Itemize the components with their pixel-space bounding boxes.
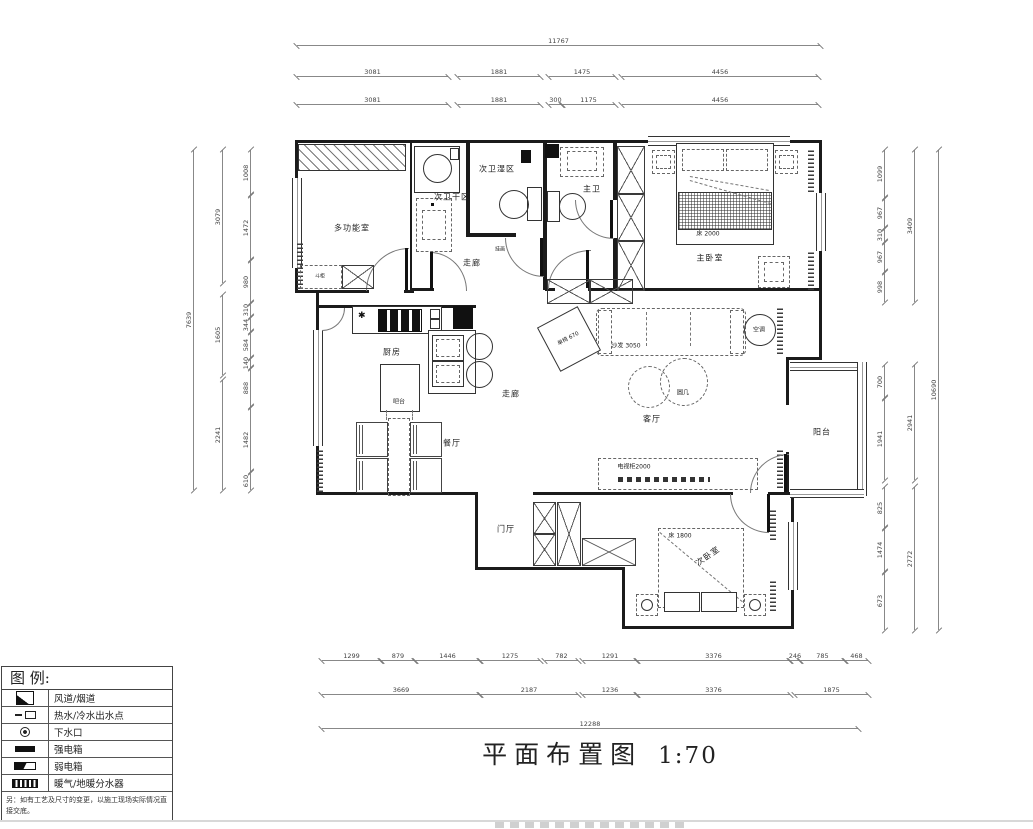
door-arc xyxy=(322,308,345,331)
dimension-segment: 4456 xyxy=(622,104,818,105)
room-label-chest: 斗柜 xyxy=(315,273,325,280)
bar-table-link xyxy=(412,410,414,420)
detergent-box xyxy=(450,148,459,160)
furniture-label-sofa: 沙发 3050 xyxy=(611,341,640,350)
room-label-corridor-a: 走廊 xyxy=(463,258,481,269)
pillow xyxy=(682,149,724,171)
radiator xyxy=(317,448,323,492)
dimension-segment: 1275 xyxy=(480,660,540,661)
counter-box xyxy=(430,319,440,329)
wall-segment xyxy=(475,567,625,570)
dimension-segment: 1475 xyxy=(549,76,615,77)
dimension-label: 879 xyxy=(392,652,404,660)
dimension-label: 1008 xyxy=(242,164,250,181)
dimension-segment: 1008 xyxy=(250,150,251,195)
dimension-label: 967 xyxy=(876,207,884,219)
dimension-label: 3669 xyxy=(393,686,410,694)
dimension-label: 1482 xyxy=(242,431,250,448)
round-table xyxy=(660,358,708,406)
dimension-label: 1236 xyxy=(602,686,619,694)
dimension-label: 3079 xyxy=(214,208,222,225)
burner-circle xyxy=(466,361,493,388)
window xyxy=(788,522,798,590)
door-leaf xyxy=(405,248,408,290)
dimension-label: 3081 xyxy=(364,68,381,76)
nightstand-lamp xyxy=(749,599,761,611)
sofa-divider xyxy=(646,312,648,346)
furniture-label-round-table: 圆几 xyxy=(677,388,689,397)
room-label-bath1: 主卫 xyxy=(583,184,601,195)
dimension-segment: 1881 xyxy=(458,104,540,105)
room-label-kitchen: 厨房 xyxy=(383,347,401,358)
legend-row: 暖气/地暖分水器 xyxy=(2,775,172,792)
dimension-label: 1941 xyxy=(876,431,884,448)
dimension-segment: 1299 xyxy=(322,660,381,661)
dimension-segment: 1446 xyxy=(415,660,480,661)
legend-label: 下水口 xyxy=(49,725,172,739)
legend-symbol-water-outlet xyxy=(2,707,49,723)
room-label-corridor-b: 走廊 xyxy=(502,389,520,400)
dimension-label: 825 xyxy=(876,501,884,513)
door-arc xyxy=(505,238,544,277)
dimension-segment: 1482 xyxy=(250,407,251,472)
room-label-multi: 多功能室 xyxy=(334,223,370,234)
room-label-master: 主卧室 xyxy=(697,253,724,264)
burner-circle xyxy=(466,333,493,360)
foyer-closet xyxy=(533,502,556,535)
kitchen-sink-inner xyxy=(436,365,460,383)
door-arc xyxy=(430,252,467,291)
sofa-armrest xyxy=(598,310,612,354)
dimension-segment: 1291 xyxy=(583,660,637,661)
dimension-label: 1299 xyxy=(343,652,360,660)
dimension-segment: 2241 xyxy=(222,380,223,490)
dimension-segment: 998 xyxy=(884,272,885,302)
wall-segment xyxy=(786,357,789,405)
gas-symbol: ✱ xyxy=(358,312,366,321)
dimension-segment: 888 xyxy=(250,368,251,407)
room-label-living: 客厅 xyxy=(643,414,661,425)
nightstand-inner xyxy=(779,155,794,169)
tv-cabinet-dashes xyxy=(618,477,710,482)
stove xyxy=(378,309,422,332)
legend-label: 风道/烟道 xyxy=(49,691,172,705)
radiator xyxy=(808,150,814,192)
kitchen-sink-inner xyxy=(436,339,460,357)
dimension-segment: 3376 xyxy=(637,660,790,661)
dimension-label: 980 xyxy=(242,275,250,287)
sofa-divider xyxy=(690,312,692,346)
corner-seat-inner xyxy=(764,262,784,282)
wall-segment xyxy=(533,492,733,495)
wall-segment xyxy=(466,140,470,236)
dimension-segment: 468 xyxy=(845,660,868,661)
dimension-segment: 4456 xyxy=(622,76,818,77)
dimension-segment: 7639 xyxy=(193,150,194,490)
dimension-segment: 3081 xyxy=(297,104,448,105)
dimension-segment: 673 xyxy=(884,572,885,630)
hall-cabinet xyxy=(547,279,591,304)
dimension-segment: 584 xyxy=(250,332,251,358)
dimension-label: 1881 xyxy=(491,68,508,76)
dimension-label: 1291 xyxy=(602,652,619,660)
dimension-segment: 1881 xyxy=(458,76,540,77)
dimension-label: 1446 xyxy=(439,652,456,660)
balcony-window xyxy=(790,489,864,498)
dimension-segment: 12288 xyxy=(322,728,858,729)
dimension-segment: 3669 xyxy=(322,694,480,695)
wall-segment xyxy=(622,626,794,629)
dimension-label: 4456 xyxy=(712,96,729,104)
door-leaf xyxy=(784,454,787,492)
door-leaf xyxy=(430,252,433,290)
dimension-label: 246 xyxy=(789,652,801,660)
dimension-segment: 782 xyxy=(545,660,578,661)
dimension-segment: 1605 xyxy=(222,295,223,375)
room-label-bath2-wet: 次卫湿区 xyxy=(479,164,515,175)
radiator xyxy=(770,580,776,611)
dining-chair xyxy=(410,422,442,457)
dimension-label: 310 xyxy=(876,229,884,241)
shower-symbol: ✱ xyxy=(521,153,529,162)
legend-row: 下水口 xyxy=(2,724,172,741)
legend-symbol-drain xyxy=(2,724,49,740)
dimension-label: 700 xyxy=(876,375,884,387)
legend-row: 热水/冷水出水点 xyxy=(2,707,172,724)
room-label-bar: 吧台 xyxy=(393,397,405,406)
toilet-tank xyxy=(527,187,542,221)
legend-symbol-flue xyxy=(2,690,49,706)
pillow xyxy=(664,592,700,612)
dimension-label: 2187 xyxy=(521,686,538,694)
door-leaf xyxy=(610,200,613,238)
dimension-label: 3081 xyxy=(364,96,381,104)
dimension-label: 888 xyxy=(242,381,250,393)
legend-label: 暖气/地暖分水器 xyxy=(49,776,172,790)
dimension-label: 998 xyxy=(876,281,884,293)
dimension-label: 1605 xyxy=(214,327,222,344)
dimension-label: 11767 xyxy=(548,37,569,45)
balcony-window xyxy=(857,362,867,496)
dimension-segment: 2187 xyxy=(480,694,578,695)
drawing-title: 平面布置图1:70 xyxy=(430,735,770,771)
legend-table: 图 例: 风道/烟道 热水/冷水出水点 下水口 强电箱 弱电箱 暖气/地暖分水器… xyxy=(1,666,173,821)
room-label-foyer: 门厅 xyxy=(497,524,515,535)
dimension-segment: 1099 xyxy=(884,150,885,198)
vanity-sink xyxy=(422,210,446,240)
washing-machine-drum xyxy=(423,154,452,183)
dimension-label: 1275 xyxy=(502,652,519,660)
dimension-label: 967 xyxy=(876,251,884,263)
radiator xyxy=(808,252,814,290)
dimension-segment: 3081 xyxy=(297,76,448,77)
dimension-label: 468 xyxy=(850,652,862,660)
dimension-label: 1475 xyxy=(574,68,591,76)
door-leaf xyxy=(767,494,770,532)
bed-blanket xyxy=(678,192,772,230)
legend-symbol-manifold xyxy=(2,775,49,791)
room-label-dining: 餐厅 xyxy=(443,438,461,449)
furniture-label-tv: 电视柜2000 xyxy=(617,462,650,471)
wall-segment xyxy=(295,290,369,293)
dimension-segment: 11767 xyxy=(297,45,820,46)
dimension-segment: 1472 xyxy=(250,195,251,260)
legend-header: 图 例: xyxy=(2,667,172,690)
wall-segment xyxy=(786,357,822,360)
dimension-label: 3376 xyxy=(705,652,722,660)
legend-label: 强电箱 xyxy=(49,742,172,756)
dimension-label: 1875 xyxy=(823,686,840,694)
pillow xyxy=(726,149,768,171)
dimension-segment: 10690 xyxy=(938,150,939,630)
furniture-label-master-bed: 床 2000 xyxy=(696,229,719,238)
wall-segment xyxy=(410,140,412,290)
dimension-label: 1881 xyxy=(491,96,508,104)
legend-label: 弱电箱 xyxy=(49,759,172,773)
dining-chair xyxy=(356,458,388,493)
toilet-bowl xyxy=(499,190,529,219)
room-label-balcony: 阳台 xyxy=(813,427,831,438)
legend-note: 另：如有工艺及尺寸的变更，以施工现场实际情况直接交底。 xyxy=(2,792,172,820)
dimension-label: 1175 xyxy=(580,96,597,104)
foyer-closet xyxy=(533,533,556,566)
dimension-segment: 3376 xyxy=(637,694,790,695)
title-text: 平面布置图 xyxy=(482,740,642,769)
dimension-label: 3376 xyxy=(705,686,722,694)
dining-chair xyxy=(356,422,388,457)
wardrobe xyxy=(617,146,645,195)
sofa-armrest xyxy=(730,310,744,354)
hall-cabinet xyxy=(589,279,633,304)
window xyxy=(816,193,826,251)
dimension-segment: 1175 xyxy=(562,104,615,105)
bath-sink xyxy=(567,151,597,171)
cutoff-text-strip xyxy=(495,822,685,828)
balcony-window xyxy=(790,362,864,371)
dimension-segment: 879 xyxy=(381,660,415,661)
legend-row: 强电箱 xyxy=(2,741,172,758)
nightstand-lamp xyxy=(641,599,653,611)
dimension-label: 2941 xyxy=(906,414,914,431)
dimension-segment: 785 xyxy=(800,660,845,661)
dimension-label: 785 xyxy=(816,652,828,660)
floor-plan-page: 11767 3081188114754456 30811881300117544… xyxy=(0,0,1033,829)
flue xyxy=(545,144,559,158)
dimension-segment: 1941 xyxy=(884,398,885,480)
dimension-label: 3409 xyxy=(906,218,914,235)
dimension-segment: 3079 xyxy=(222,150,223,283)
dimension-segment: 1474 xyxy=(884,528,885,572)
dimension-segment: 3409 xyxy=(914,150,915,302)
dimension-label: 4456 xyxy=(712,68,729,76)
wall-segment xyxy=(475,492,478,570)
dimension-segment: 825 xyxy=(884,487,885,528)
dimension-label: 1099 xyxy=(876,166,884,183)
dimension-segment: 1875 xyxy=(795,694,868,695)
dimension-segment: 1236 xyxy=(583,694,637,695)
legend-row: 风道/烟道 xyxy=(2,690,172,707)
foyer-cabinet xyxy=(582,538,636,566)
wall-segment xyxy=(622,567,625,629)
dimension-segment: 980 xyxy=(250,260,251,303)
radiator xyxy=(777,308,783,354)
dimension-label: 7639 xyxy=(185,312,193,329)
legend-symbol-weak-power xyxy=(2,758,49,774)
wardrobe xyxy=(617,193,645,242)
dimension-label: 12288 xyxy=(580,720,601,728)
pillow xyxy=(701,592,737,612)
legend-symbol-strong-power xyxy=(2,741,49,757)
dimension-label: 782 xyxy=(555,652,567,660)
faucet-dot xyxy=(431,203,434,206)
furniture-label-ac: 空调 xyxy=(753,325,765,334)
wall-segment xyxy=(466,233,516,237)
title-scale: 1:70 xyxy=(658,743,718,769)
dimension-label: 673 xyxy=(876,595,884,607)
door-leaf xyxy=(540,238,543,276)
nightstand-inner xyxy=(656,155,671,169)
dimension-label: 1472 xyxy=(242,219,250,236)
room-label-bath2-dry: 次卫干区 xyxy=(434,192,470,203)
window xyxy=(313,330,323,446)
dimension-label: 344 xyxy=(242,318,250,330)
wardrobe xyxy=(298,144,406,171)
dining-table xyxy=(388,418,410,496)
label-art: 挂画 xyxy=(495,246,505,253)
dimension-label: 2772 xyxy=(906,550,914,567)
flue xyxy=(453,306,473,329)
furniture-label-second-bed: 床 1800 xyxy=(668,531,691,540)
dimension-segment: 700 xyxy=(884,365,885,398)
dimension-label: 610 xyxy=(242,475,250,487)
radiator xyxy=(770,508,776,540)
dimension-segment: 967 xyxy=(884,198,885,228)
dimension-label: 310 xyxy=(242,304,250,316)
dining-chair xyxy=(410,458,442,493)
dimension-label: 584 xyxy=(242,339,250,351)
dimension-segment: 2941 xyxy=(914,365,915,480)
counter-box xyxy=(430,309,440,319)
foyer-closet xyxy=(557,502,581,566)
legend-row: 弱电箱 xyxy=(2,758,172,775)
dimension-segment: 2772 xyxy=(914,487,915,630)
toilet-bowl xyxy=(559,193,586,220)
dimension-label: 1474 xyxy=(876,542,884,559)
dimension-segment: 967 xyxy=(884,242,885,272)
cabinet xyxy=(342,265,374,289)
dimension-label: 10690 xyxy=(930,380,938,401)
legend-label: 热水/冷水出水点 xyxy=(49,708,172,722)
wall-segment xyxy=(819,288,822,360)
dimension-segment: 610 xyxy=(250,472,251,490)
dimension-label: 2241 xyxy=(214,427,222,444)
